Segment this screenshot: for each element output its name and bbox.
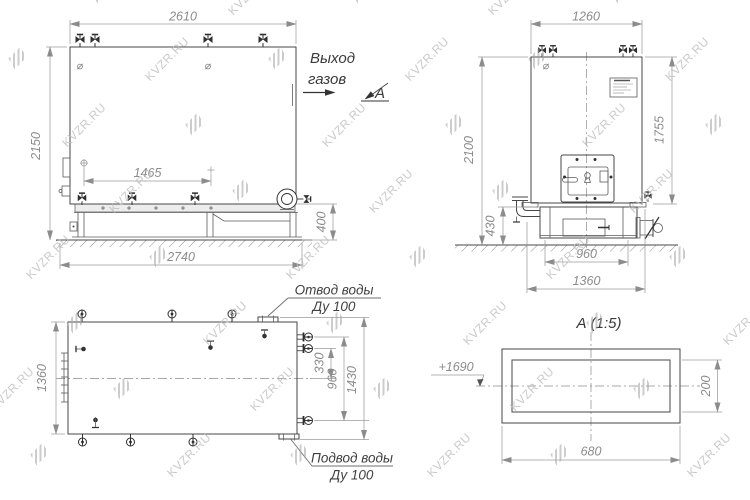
inlet-label-line2: Ду 100: [329, 468, 374, 483]
section-arrow-icon: [365, 91, 375, 99]
burner-flange: [636, 217, 663, 239]
dim-plan-depth: 1360: [35, 322, 65, 434]
base-side: [540, 207, 637, 238]
side-height-left-dim-label: 2100: [462, 136, 476, 165]
side-height-right-dim-label: 1755: [653, 116, 667, 144]
level-mark: +1690: [431, 360, 484, 387]
dim-side-height-right: 1755: [645, 57, 677, 204]
gas-outlet-label: Выход газов: [303, 50, 355, 96]
boiler-body-plan: [68, 322, 297, 434]
bottom-valve-icon: [127, 434, 135, 446]
plan-1430-dim-label: 1430: [345, 366, 359, 394]
side-nozzle-icon: [297, 416, 313, 425]
ground-side: [455, 245, 678, 252]
dim-section-width: 680: [502, 426, 680, 464]
side-width-dim-label: 1260: [572, 10, 600, 24]
plan-330-dim-label: 330: [313, 353, 327, 374]
section-title: А (1:5): [575, 315, 621, 332]
section-marker: А: [361, 83, 389, 102]
downcomer-pipe: [512, 197, 540, 222]
side-base-height-dim-label: 430: [484, 216, 498, 237]
base-width-dim-label: 2740: [166, 250, 195, 264]
outlet-label-line2: Ду 100: [311, 299, 356, 314]
technical-drawing-canvas: 2610 2150 1465 400 2740 Выход газов: [0, 0, 750, 500]
plan-view: 1360 330 960 1430 Отвод воды Ду 100: [35, 283, 393, 483]
top-valve-icon: [228, 310, 236, 322]
section-height-dim-label: 200: [699, 376, 713, 398]
boiler-drawing: 2610 2150 1465 400 2740 Выход газов: [0, 0, 750, 500]
base-frame-front: [70, 212, 302, 237]
dim-base-height: 400: [297, 204, 337, 240]
plan-depth-dim-label: 1360: [35, 364, 49, 392]
side-base-inner-dim-label: 960: [576, 247, 597, 261]
side-nozzle-icon: [297, 333, 313, 342]
level-mark-label: +1690: [438, 360, 473, 374]
side-base-width-dim-label: 1360: [573, 274, 601, 288]
inlet-flange: [279, 434, 299, 441]
left-edge-fittings: [59, 158, 70, 196]
ground-front: [56, 240, 312, 247]
drain-valve-icon: [78, 193, 87, 205]
drain-valve-icon: [191, 193, 200, 205]
side-view: 1260 2100 1755 430 960 1360: [455, 10, 678, 294]
outlet-flange: [258, 316, 278, 323]
vent-symbol-side: [543, 64, 549, 70]
safety-valve-icon: [549, 46, 557, 57]
collector-band: [75, 204, 295, 212]
side-nozzle-icon: [297, 344, 313, 353]
dim-front-height: 2150: [29, 47, 67, 240]
front-inner-dim-label: 1465: [134, 166, 162, 180]
section-letter-label: А: [374, 85, 385, 102]
gas-flow-arrowhead-icon: [325, 89, 336, 95]
dim-side-base-height: 430: [484, 207, 537, 245]
inlet-label-line1: Подвод воды: [311, 451, 393, 466]
dim-side-top-width: 1260: [531, 10, 642, 55]
top-valve-icon: [168, 310, 176, 322]
side-valve-icon: [300, 195, 311, 203]
boiler-body-front: [70, 47, 296, 204]
nameplate: [610, 78, 637, 97]
front-height-dim-label: 2150: [29, 132, 43, 161]
vent-symbols-front: [77, 64, 211, 70]
safety-valve-icon: [76, 35, 85, 48]
gas-outlet-label-line2: газов: [308, 71, 346, 88]
bottom-valve-icon: [79, 434, 87, 446]
access-door: [561, 155, 614, 202]
safety-valve-icon: [629, 46, 637, 57]
pump-flange: [277, 189, 300, 210]
plan-960-dim-label: 960: [326, 369, 340, 390]
safety-valve-icon: [538, 46, 546, 57]
dim-front-inner: 1465: [84, 166, 211, 186]
safety-valve-icon: [204, 35, 213, 48]
safety-valve-icon: [91, 35, 100, 48]
base-height-dim-label: 400: [315, 212, 329, 233]
bottom-valve-icon: [189, 434, 197, 446]
reference-cross-right: [208, 167, 215, 174]
front-width-dim-label: 2610: [168, 10, 197, 24]
outlet-label: Отвод воды Ду 100: [268, 283, 381, 317]
top-valve-icon: [78, 310, 86, 322]
reference-cross-left: [80, 159, 88, 167]
drain-valve-icon: [128, 193, 137, 205]
section-view: А (1:5) 200 680 +1690: [431, 315, 722, 464]
gas-outlet-label-line1: Выход: [310, 50, 355, 67]
side-small-valve-icon: [644, 192, 651, 202]
section-width-dim-label: 680: [581, 445, 602, 459]
keyhole-icon: [585, 173, 591, 179]
front-view: 2610 2150 1465 400 2740 Выход газов: [29, 10, 389, 270]
boiler-body-side: [531, 57, 642, 203]
outlet-label-line1: Отвод воды: [295, 283, 374, 298]
level-arrow-icon: [477, 379, 484, 387]
inlet-label: Подвод воды Ду 100: [291, 440, 393, 483]
safety-valve-icon: [259, 35, 268, 48]
ladder-bracket: [61, 353, 68, 402]
safety-valve-icon: [619, 46, 627, 57]
